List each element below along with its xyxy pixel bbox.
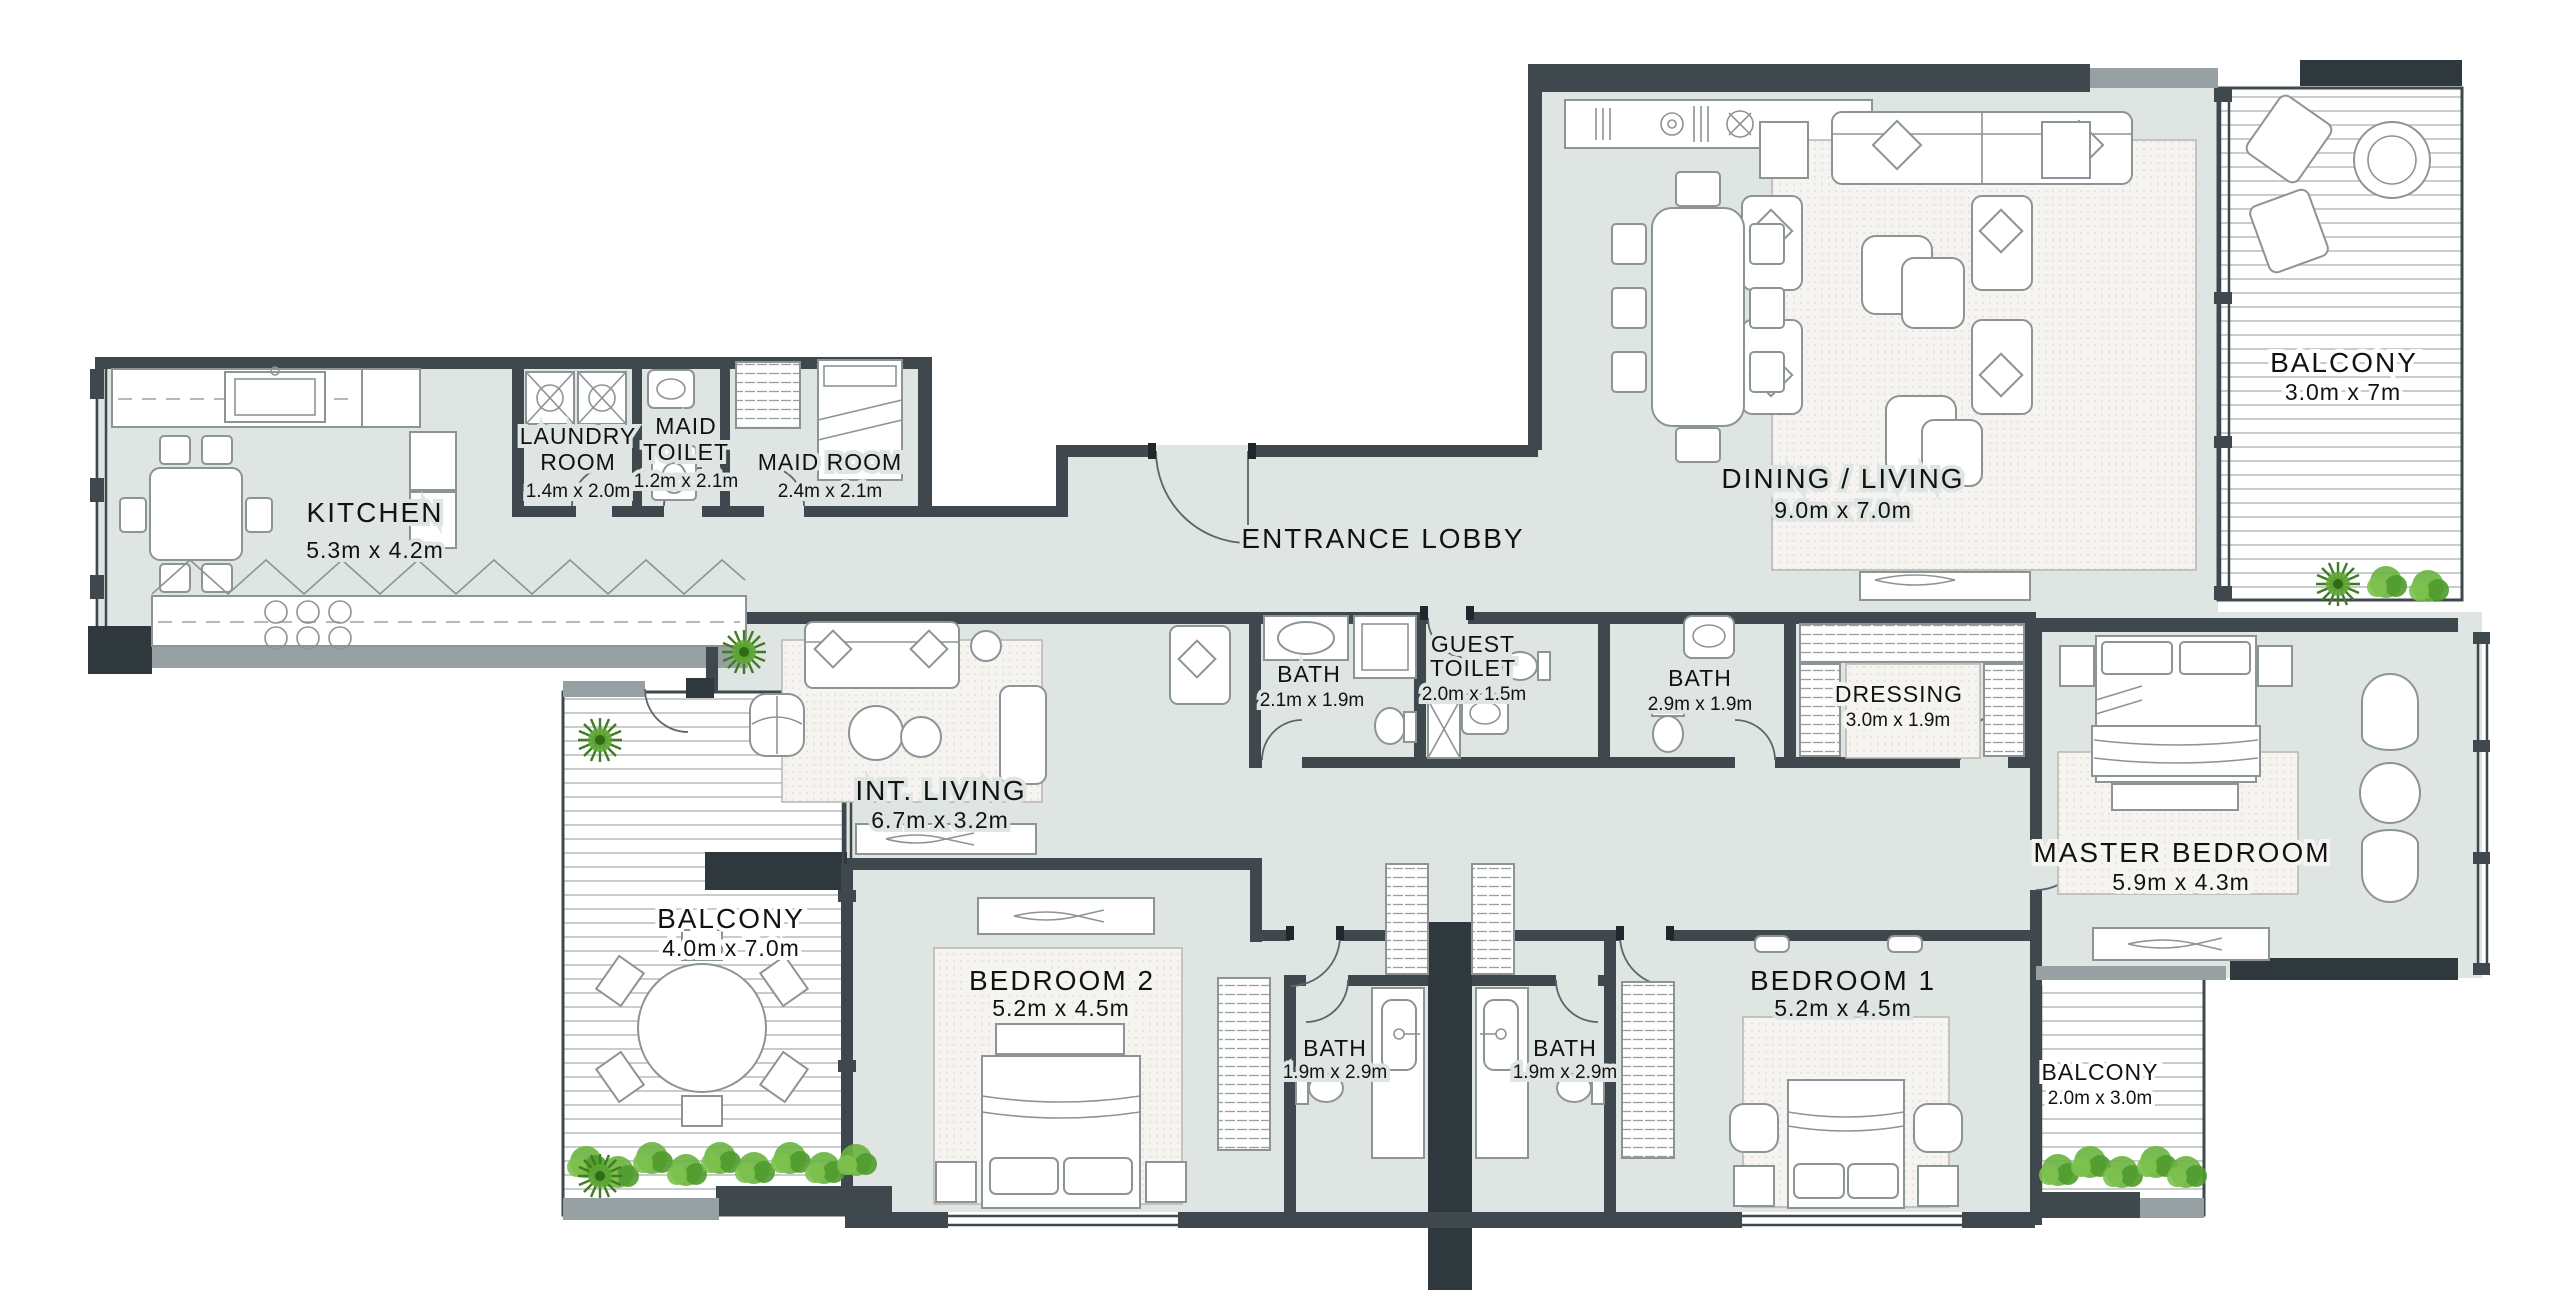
nightstand [936,1162,976,1202]
balcony-right-furniture [2039,1146,2207,1218]
label-int-living-dims: 6.7m x 3.2m [871,807,1009,833]
label-balcony-top: BALCONY [2270,347,2418,378]
label-bath-a: BATH [1277,661,1341,687]
plant-icon [578,718,622,762]
label-laundry-1: LAUNDRY [520,423,637,449]
tv-console [2093,928,2269,960]
label-maid-toilet-2: TOILET [643,439,729,465]
chaise [1000,686,1046,784]
nightstand [2258,646,2292,686]
label-guest-toilet-dims: 2.0m x 1.5m [1422,684,1527,705]
side-table [1760,122,1808,178]
shower [1484,1000,1518,1070]
sink-icon [1278,622,1334,654]
label-guest-toilet-1: GUEST [1431,631,1515,657]
sconce [1888,936,1922,952]
label-maid-toilet-dims: 1.2m x 2.1m [634,471,739,492]
label-balcony-right-dims: 2.0m x 3.0m [2048,1088,2153,1109]
plant-icon [722,630,766,674]
label-bath-b-dims: 2.9m x 1.9m [1648,694,1753,715]
label-maid-room: MAID ROOM [758,449,902,475]
label-laundry-2: ROOM [540,449,616,475]
master-chairs [2360,674,2420,902]
label-balcony-top-dims: 3.0m x 7m [2285,379,2401,405]
label-bedroom2: BEDROOM 2 [969,965,1155,996]
label-entrance-lobby: ENTRANCE LOBBY [1241,523,1524,554]
nightstand [1146,1162,1186,1202]
label-balcony-left: BALCONY [657,903,805,934]
tv-console [1860,572,2030,600]
dining-table [1652,208,1744,426]
armchair [1914,1104,1962,1152]
toilet-icon [1653,716,1683,752]
label-bath-c: BATH [1303,1035,1367,1061]
label-dining-living-dims: 9.0m x 7.0m [1774,497,1912,523]
bed-bench [2112,784,2238,810]
label-kitchen-dims: 5.3m x 4.2m [306,537,444,563]
label-dressing: DRESSING [1835,681,1963,707]
floor-plan-canvas: KITCHEN 5.3m x 4.2m LAUNDRY ROOM 1.4m x … [0,0,2560,1299]
sconce [1755,936,1789,952]
toilet-icon [1375,708,1405,744]
shower [1382,1000,1416,1070]
label-bedroom2-dims: 5.2m x 4.5m [992,995,1130,1021]
wardrobe-icon [1218,978,1270,1150]
label-laundry-dims: 1.4m x 2.0m [526,481,631,502]
label-dining-living: DINING / LIVING [1721,463,1964,494]
label-bath-a-dims: 2.1m x 1.9m [1260,690,1365,711]
fridge [410,432,456,490]
nightstand [2060,646,2094,686]
dresser [996,1024,1124,1054]
label-bedroom1-dims: 5.2m x 4.5m [1774,995,1912,1021]
wardrobe-icon [1984,664,2024,756]
label-dressing-dims: 3.0m x 1.9m [1846,710,1951,731]
wardrobe-icon [736,362,800,428]
planter-bushes [2039,1146,2207,1218]
label-balcony-right: BALCONY [2042,1059,2159,1085]
label-bath-d-dims: 1.9m x 2.9m [1513,1062,1618,1083]
tv-console [978,898,1154,934]
label-bedroom1: BEDROOM 1 [1750,965,1936,996]
floor-plan-drawing: KITCHEN 5.3m x 4.2m LAUNDRY ROOM 1.4m x … [0,0,2560,1299]
label-kitchen: KITCHEN [307,497,444,528]
side-table [1918,1166,1958,1206]
label-balcony-left-dims: 4.0m x 7.0m [662,935,800,961]
label-bath-d: BATH [1533,1035,1597,1061]
wardrobe-icon [1800,624,2024,662]
wardrobe-icon [1386,864,1428,974]
label-guest-toilet-2: TOILET [1430,655,1516,681]
label-int-living: INT. LIVING [855,775,1026,806]
side-table [1734,1166,1774,1206]
wardrobe-icon [1622,982,1674,1158]
label-master-bedroom-dims: 5.9m x 4.3m [2112,869,2250,895]
round-table [638,964,766,1092]
armchair [1730,1104,1778,1152]
wardrobe-icon [1472,864,1514,974]
service-shaft [1428,922,1472,1290]
wardrobe-icon [1800,664,1840,756]
label-bath-c-dims: 1.9m x 2.9m [1283,1062,1388,1083]
kitchen-table [150,468,242,560]
floor-kitchen-corridor [920,512,1068,612]
label-maid-room-dims: 2.4m x 2.1m [778,481,883,502]
label-maid-toilet-1: MAID [655,413,717,439]
plant-icon [2316,562,2360,606]
label-bath-b: BATH [1668,665,1732,691]
label-master-bedroom: MASTER BEDROOM [2033,837,2330,868]
balcony-table [2354,122,2430,198]
